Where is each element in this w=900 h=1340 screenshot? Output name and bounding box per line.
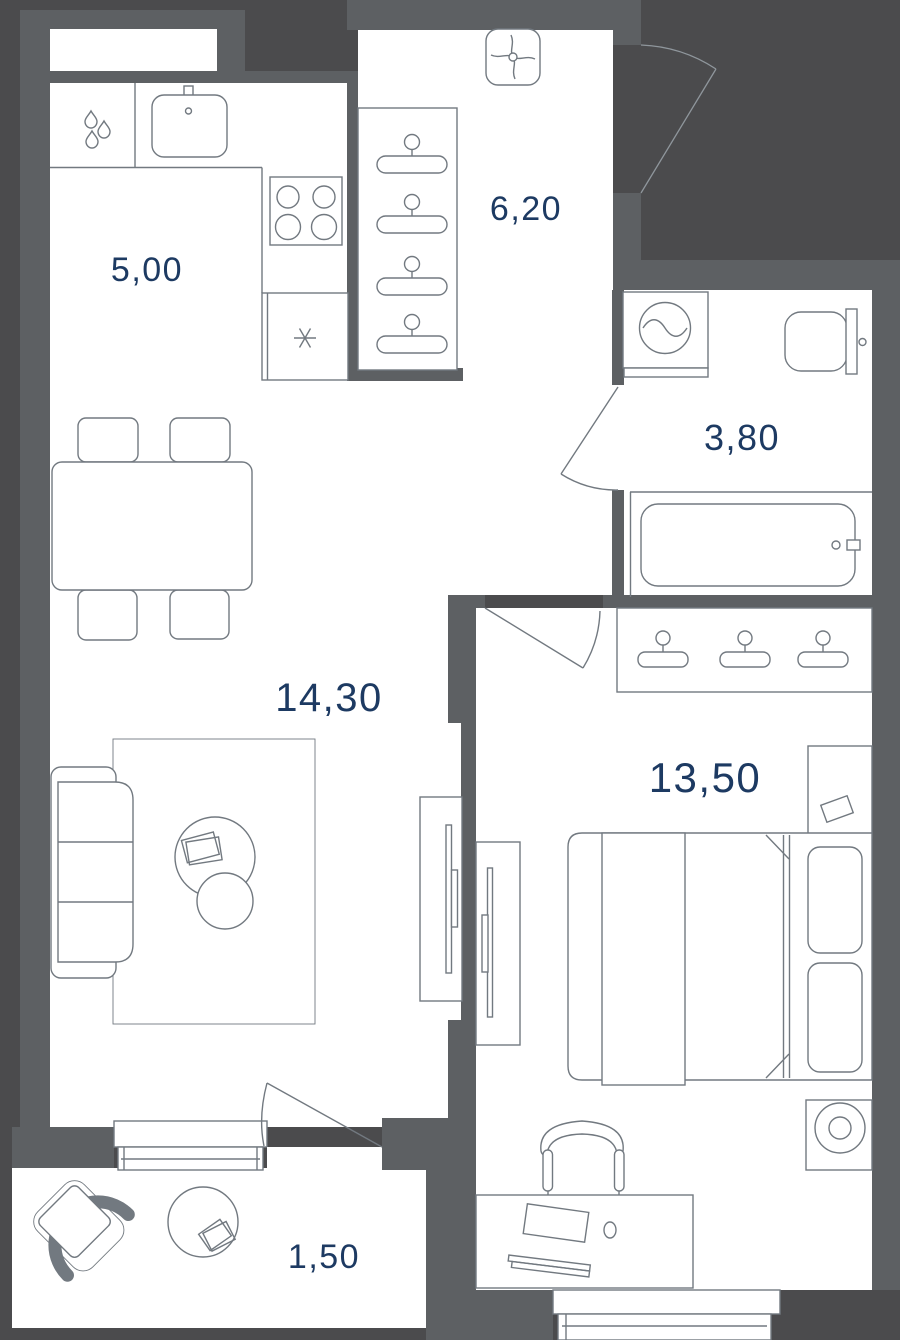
wall-living-bedroom-niche [461,723,476,1020]
toilet-icon [785,309,866,374]
sofa-icon [51,767,133,978]
floor-plan: 5,00 6,20 3,80 14,30 13,50 1,50 [0,0,900,1340]
bathroom-area-label: 3,80 [704,417,780,458]
balcony-area-label: 1,50 [288,1238,360,1276]
fridge-icon [262,293,348,380]
bedroom-window-sill [553,1290,780,1314]
stove-icon [270,177,342,245]
bedroom-window-frame [558,1314,771,1340]
washing-machine-icon [623,292,708,377]
wall-corner-block [382,1118,476,1170]
entry-door-jamb-bottom [613,193,641,260]
bed-icon [568,833,872,1085]
ceiling-fan-icon [486,29,540,85]
hallway-area-label: 6,20 [490,190,562,228]
living-room-area-label: 14,30 [275,676,383,720]
balcony-door-gap [267,1147,382,1168]
kitchen-window [50,29,217,71]
wall-living-bedroom-upper [448,595,476,723]
entry-door-jamb-top [613,0,641,45]
tv-stand-living-icon [420,797,462,1001]
bathtub-icon [630,492,872,597]
wall-top-band [245,71,358,83]
kitchen-area-label: 5,00 [111,251,183,289]
wall-bedroom-bottom-left [476,1290,553,1340]
wall-hall-top [347,0,613,30]
balcony-table-icon [168,1187,238,1257]
nightstand-bottom-icon [806,1100,872,1170]
wall-living-bedroom-lower [448,1020,476,1120]
balcony-window-sill [114,1121,267,1147]
wall-right [872,260,900,1290]
floor-plan-canvas: 5,00 6,20 3,80 14,30 13,50 1,50 [0,0,900,1340]
wall-left [20,10,50,1127]
wall-balcony-right-block [426,1170,476,1340]
nightstand-top-icon [808,746,872,838]
wall-bathroom-bottom-band [603,595,872,608]
wall-bathroom-top [613,260,900,290]
wall-bathroom-left-lower [612,490,624,597]
wall-bathroom-left-upper [612,290,624,385]
bathroom-door-gap [612,385,624,490]
corridor-floor [463,368,612,595]
bedroom-area-label: 13,50 [649,754,762,801]
desk-icon [476,1195,693,1288]
kitchen-sink-icon [152,86,227,157]
wall-living-bottom [12,1127,114,1168]
tv-stand-bedroom-icon [476,842,520,1045]
